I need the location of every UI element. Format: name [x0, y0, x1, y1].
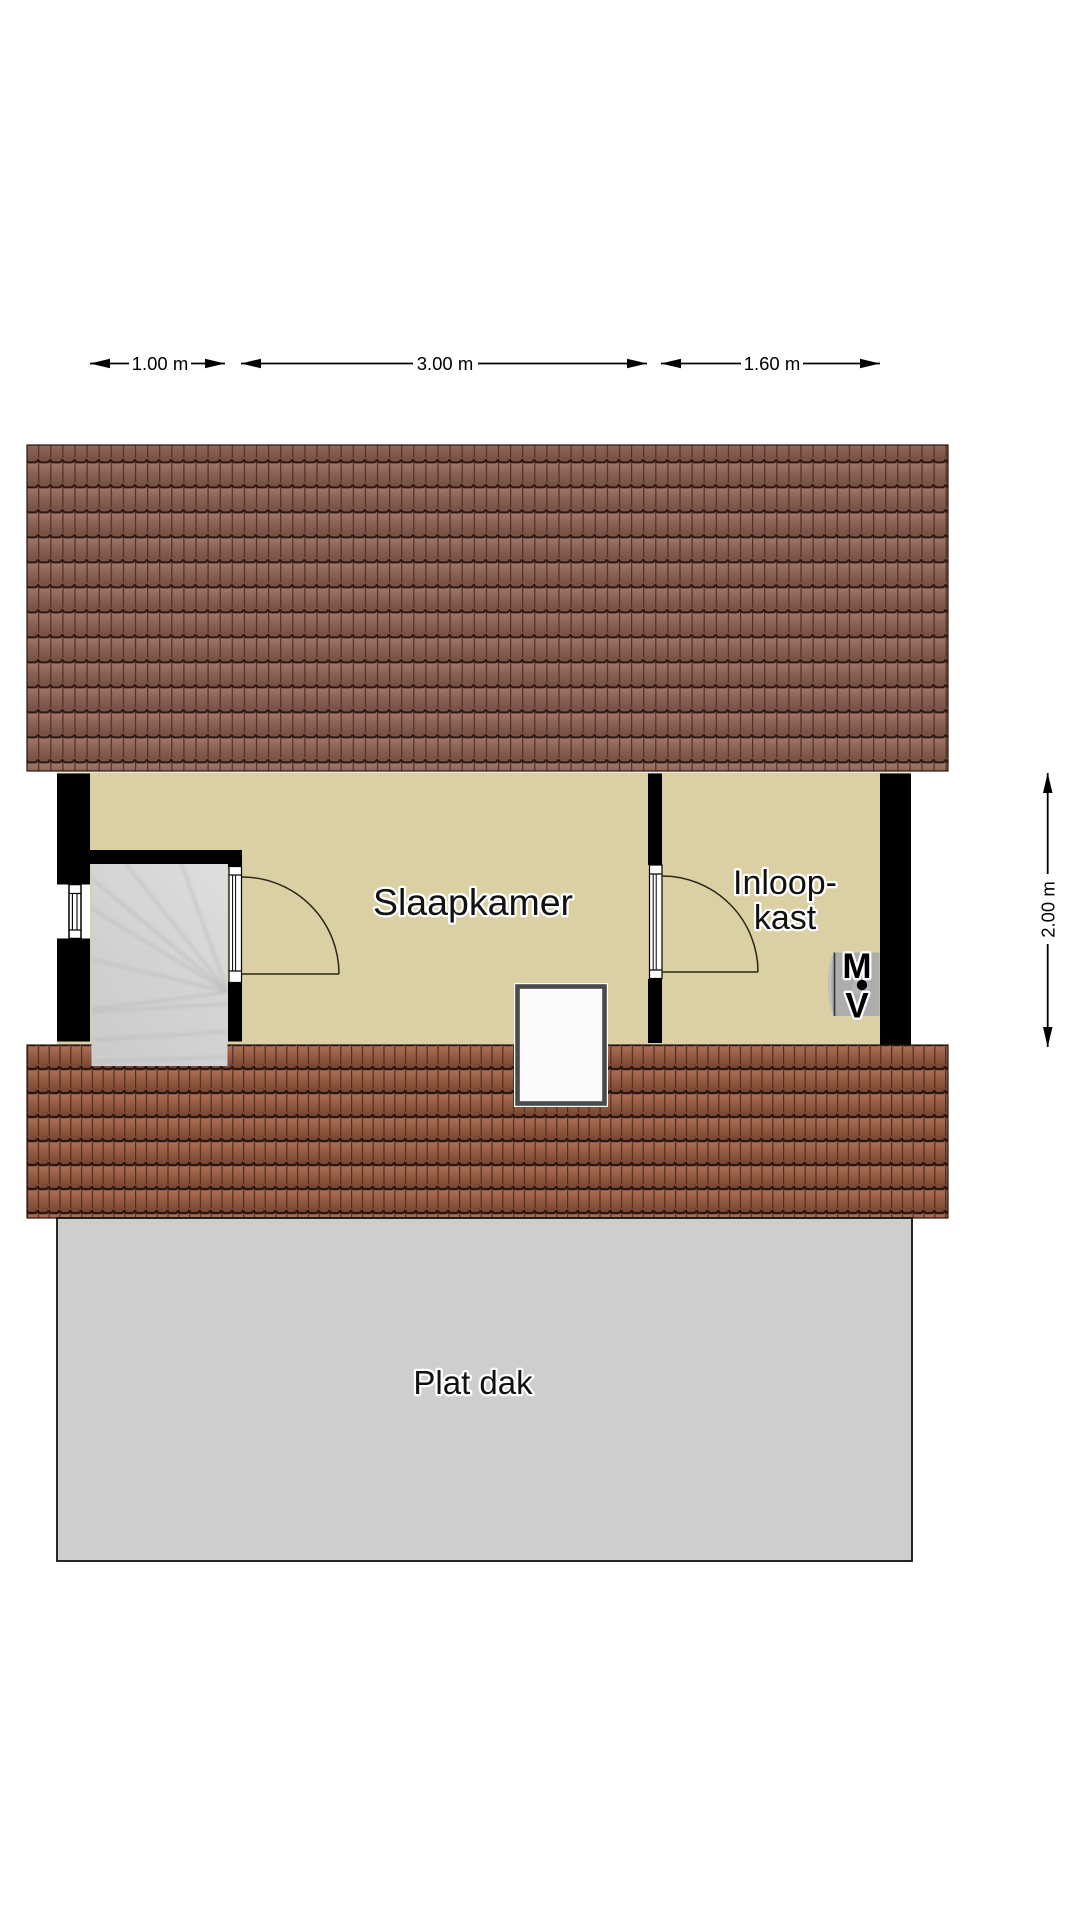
svg-text:2.00 m: 2.00 m	[1038, 881, 1059, 938]
svg-text:Plat dak: Plat dak	[413, 1364, 533, 1401]
svg-text:1.60 m: 1.60 m	[744, 353, 801, 374]
svg-text:1.00 m: 1.00 m	[132, 353, 189, 374]
svg-text:3.00 m: 3.00 m	[417, 353, 474, 374]
svg-text:V: V	[845, 987, 869, 1026]
svg-text:kast: kast	[754, 899, 817, 937]
svg-text:Slaapkamer: Slaapkamer	[373, 881, 573, 923]
svg-text:M: M	[842, 947, 871, 986]
svg-text:Inloop-: Inloop-	[733, 864, 837, 902]
